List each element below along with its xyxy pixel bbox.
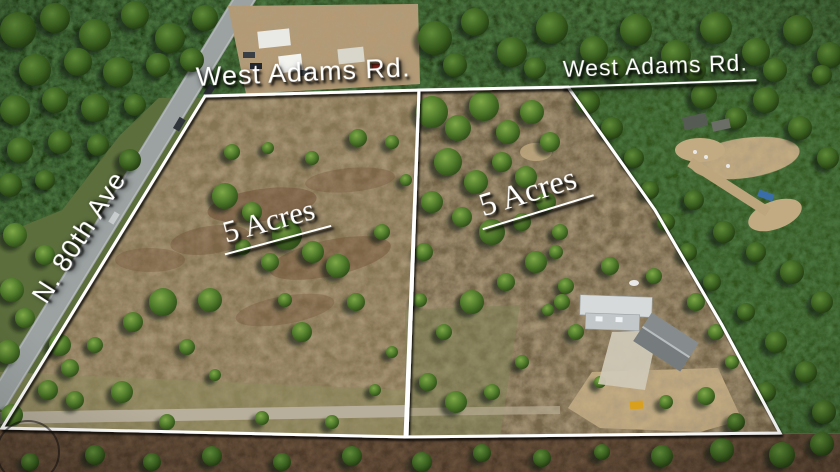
road-label-west-adams-right: West Adams Rd.: [560, 49, 756, 88]
aerial-photo: West Adams Rd. West Adams Rd. N. 80th Av…: [0, 0, 840, 472]
